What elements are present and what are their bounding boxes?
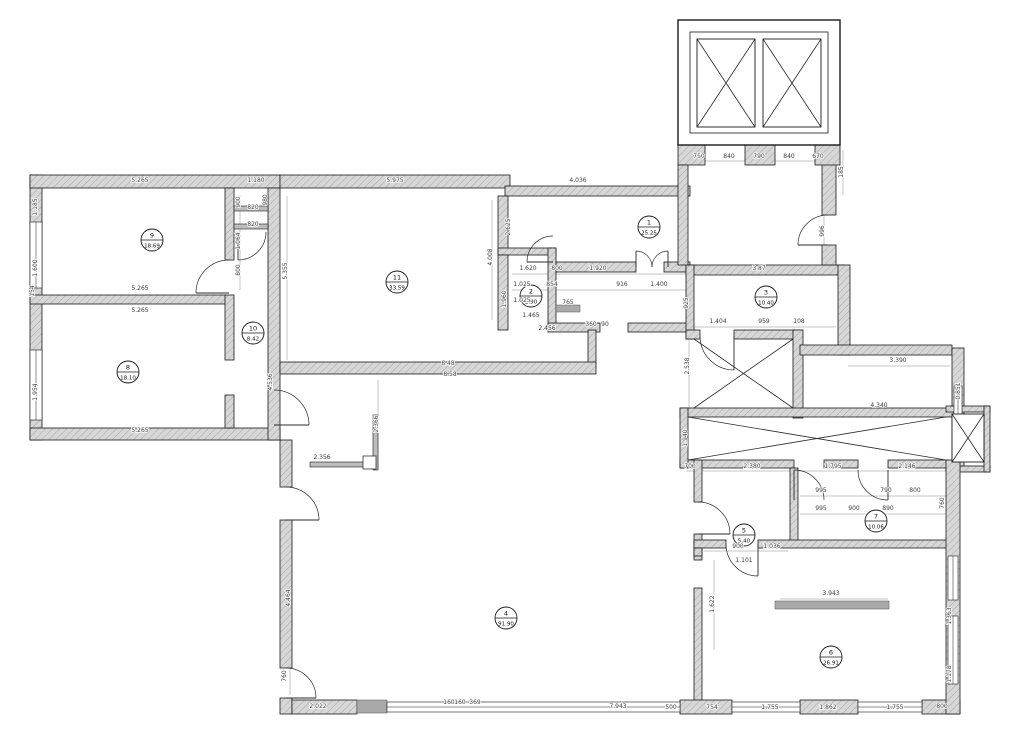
dimension-label: 700 <box>684 463 696 470</box>
dimension-label: 2.366 <box>373 415 380 432</box>
door-swing-arc <box>698 502 730 534</box>
room-tag-1: 125.25 <box>638 216 660 238</box>
dimension-label: 360 <box>585 321 597 328</box>
dimension-label: 800 <box>936 703 948 710</box>
dimension-label: 1.862 <box>819 704 836 711</box>
room-area: 25.25 <box>641 231 657 237</box>
dimension-label: 2.356 <box>313 454 330 461</box>
door-frame <box>363 456 376 469</box>
dimension-label: 790 <box>753 153 765 160</box>
dimension-label: 996 <box>819 225 826 237</box>
dimension-label: 820 <box>247 204 259 211</box>
sill <box>556 305 580 312</box>
wall <box>694 588 702 710</box>
wall <box>548 248 556 330</box>
wall <box>280 698 292 714</box>
room-number: 10 <box>249 325 257 333</box>
dimension-label: 185 <box>838 166 845 178</box>
wall <box>30 175 280 188</box>
door-swing-arc <box>238 232 266 260</box>
dimension-label: 820 <box>247 221 259 228</box>
dimension-label: 90 <box>601 321 609 328</box>
room-tag-10: 108.42 <box>242 322 264 344</box>
dimension-label: 1.960 <box>501 290 508 307</box>
dimension-label: 8.48 <box>441 360 455 367</box>
door-swing-arc <box>196 260 229 293</box>
wall <box>800 345 952 355</box>
room-number: 5 <box>742 527 746 535</box>
room-tag-11: 1133.59 <box>386 271 408 293</box>
wall <box>822 245 836 265</box>
dimension-label: 4.536 <box>267 373 274 390</box>
dimension-label: 760 <box>281 670 288 682</box>
dimension-label: 760 <box>939 497 946 509</box>
dimension-label: 2.625 <box>505 218 512 235</box>
dimension-label: 1.795 <box>824 463 841 470</box>
dimension-label: 1.600 <box>32 259 39 276</box>
dimension-label: 1.620 <box>519 265 536 272</box>
door-swing-arc <box>858 470 888 500</box>
dimension-label: 5.265 <box>131 307 148 314</box>
room-area: 18.10 <box>120 376 136 382</box>
wall <box>758 540 950 548</box>
wall <box>686 330 700 339</box>
dimension-label: 1.180 <box>247 177 264 184</box>
dimension-label: 995 <box>815 487 827 494</box>
dimension-label: 5.265 <box>131 285 148 292</box>
room-area: 91.90 <box>498 622 514 628</box>
dimension-label: 854 <box>546 281 558 288</box>
dimension-label: 1.025 <box>513 281 530 288</box>
dimension-label: 0.851 <box>955 382 962 399</box>
room-number: 9 <box>150 232 154 240</box>
door-swing-arc <box>636 251 652 267</box>
dimension-label: 900 <box>732 543 744 550</box>
dimension-label: 800 <box>909 487 921 494</box>
dimension-label: 8.58 <box>443 371 457 378</box>
room-number: 3 <box>764 289 768 297</box>
dimension-label: 4.340 <box>870 402 887 409</box>
wall <box>225 188 234 260</box>
room-number: 11 <box>393 274 401 282</box>
room-area: 8.42 <box>247 337 259 343</box>
door-swing-arc <box>286 487 319 520</box>
wall <box>680 408 958 417</box>
dimension-label: 369 <box>469 699 481 706</box>
dimension-label: 840 <box>783 153 795 160</box>
dimension-label: 900 <box>235 196 242 208</box>
dimension-label: 754 <box>706 704 718 711</box>
dimension-label: 7.943 <box>609 703 626 710</box>
dimension-label: 790 <box>880 487 892 494</box>
room-area: 10.40 <box>758 301 774 307</box>
dimension-label: 1.465 <box>522 312 539 319</box>
dimension-label: 1.064 <box>235 232 242 249</box>
room-number: 8 <box>126 364 130 372</box>
floorplan-canvas: 125.2522.90310.40491.9055.40626.91710.06… <box>0 0 1024 750</box>
dimension-label: 1.178 <box>946 665 953 682</box>
wall <box>694 540 726 548</box>
dimension-label: 5.265 <box>131 427 148 434</box>
wall <box>793 330 803 418</box>
wall <box>888 460 948 468</box>
dimension-label: 800 <box>235 264 242 276</box>
wall <box>268 188 280 440</box>
dimension-label: 4.008 <box>487 248 494 265</box>
room-tag-8: 818.10 <box>117 361 139 383</box>
room-area: 18.69 <box>144 244 160 250</box>
dimension-label: 2.538 <box>684 357 691 374</box>
dimension-label: 4.464 <box>285 589 292 606</box>
dimension-label: 1.400 <box>650 281 667 288</box>
room-tag-6: 626.91 <box>820 646 842 668</box>
dimension-label: 1.404 <box>709 318 726 325</box>
wall <box>280 362 596 374</box>
dimension-label: 3.87 <box>752 265 766 272</box>
door-swing-arc <box>286 668 316 698</box>
dimension-label: 925 <box>683 297 690 309</box>
dimension-label: 890 <box>882 505 894 512</box>
wall <box>498 248 556 255</box>
dimension-label: 1.025 <box>513 297 530 304</box>
dimension-label: 765 <box>562 299 574 306</box>
wall <box>694 548 702 556</box>
room-number: 2 <box>529 288 533 296</box>
dimension-label: 1.954 <box>32 383 39 400</box>
wall <box>30 295 226 304</box>
room-tag-4: 491.90 <box>495 607 517 629</box>
room-tag-3: 310.40 <box>755 286 777 308</box>
wall <box>984 406 990 472</box>
dimension-label: 5.355 <box>282 262 289 279</box>
dimension-label: 980 <box>262 194 269 206</box>
door-swing-arc <box>794 470 824 500</box>
fixtures-layer <box>678 20 984 462</box>
dimension-label: 1.101 <box>735 557 752 564</box>
floor-plan-document: 125.2522.90310.40491.9055.40626.91710.06… <box>0 0 1024 750</box>
room-number: 4 <box>504 610 508 618</box>
sill <box>357 700 387 713</box>
room-number: 6 <box>829 649 833 657</box>
dimension-label: 995 <box>815 505 827 512</box>
dimension-label: 1.920 <box>589 265 606 272</box>
dimension-label: 900 <box>848 505 860 512</box>
room-area: 33.59 <box>389 286 405 292</box>
wall <box>628 323 693 332</box>
dimension-label: 2.456 <box>538 325 555 332</box>
dimension-label: 154 <box>29 285 36 297</box>
wall <box>505 186 690 196</box>
wall <box>734 330 800 339</box>
doors-layer <box>196 215 888 698</box>
room-tag-9: 918.69 <box>141 229 163 251</box>
room-area: 10.06 <box>868 525 884 531</box>
dimension-label: 5.265 <box>131 177 148 184</box>
dimension-label: 800 <box>551 265 563 272</box>
dimension-label: 3.390 <box>889 357 906 364</box>
dimension-label: 5.975 <box>386 177 403 184</box>
wall <box>946 406 990 412</box>
dimension-label: 1.363 <box>946 607 953 624</box>
dimension-label: 3.943 <box>822 590 839 597</box>
dimension-label: 2.146 <box>898 463 915 470</box>
dimension-label: 4.036 <box>569 177 586 184</box>
room-number: 7 <box>874 513 878 521</box>
door-swing-arc <box>700 336 734 370</box>
dimension-label: 1.622 <box>709 595 716 612</box>
dimension-label: 108 <box>793 318 805 325</box>
wall <box>225 395 234 428</box>
dimension-label: 160 <box>443 699 455 706</box>
dimension-label: 2.380 <box>743 463 760 470</box>
wall <box>280 440 292 487</box>
dimension-label: 1.185 <box>32 198 39 215</box>
dimension-label: 1.755 <box>761 704 778 711</box>
room-tag-7: 710.06 <box>865 510 887 532</box>
dimension-label: 916 <box>616 281 628 288</box>
dimension-label: 959 <box>758 318 770 325</box>
dimension-label: 670 <box>812 153 824 160</box>
wall <box>225 295 234 360</box>
dimension-label: 840 <box>723 153 735 160</box>
dimension-label: 160 <box>454 699 466 706</box>
dimension-label: 2.022 <box>309 703 326 710</box>
wall <box>838 265 850 355</box>
wall <box>30 428 280 440</box>
sill <box>775 601 889 609</box>
wall <box>588 330 596 364</box>
dimension-label: 500 <box>665 704 677 711</box>
dimension-label: 1.036 <box>763 543 780 550</box>
dimension-label: 1.940 <box>682 429 689 446</box>
dimension-label: 750 <box>693 153 705 160</box>
room-area: 26.91 <box>823 661 839 667</box>
dimension-label: 1.755 <box>886 704 903 711</box>
room-number: 1 <box>647 219 651 227</box>
wall <box>678 165 688 265</box>
